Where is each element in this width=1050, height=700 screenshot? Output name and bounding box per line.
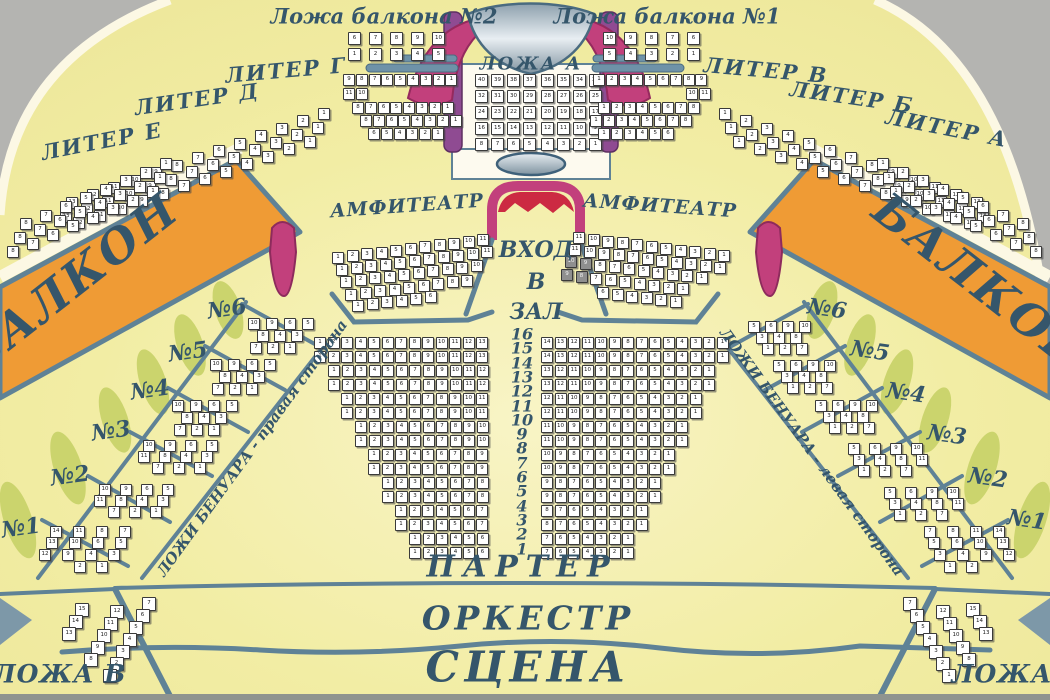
seat-lozha-a-left[interactable]: 37: [523, 74, 536, 87]
seat-parter-left[interactable]: 4: [396, 435, 408, 447]
seat-liter-d[interactable]: 3: [270, 137, 282, 149]
seat-parter-left[interactable]: 9: [436, 379, 448, 391]
seat-benuar-l4[interactable]: 9: [190, 400, 202, 412]
seat-liter-b[interactable]: 5: [809, 152, 821, 164]
seat-parter-right[interactable]: 10: [595, 351, 607, 363]
seat-liter-d[interactable]: 2: [297, 115, 309, 127]
seat-amfiteatr-left[interactable]: 2: [367, 298, 379, 310]
seat-liter-a[interactable]: 7: [1010, 238, 1022, 250]
seat-parter-left[interactable]: 8: [463, 449, 475, 461]
seat-parter-left[interactable]: 3: [355, 365, 367, 377]
seat-liter-v[interactable]: 4: [636, 102, 648, 114]
seat-parter-right[interactable]: 12: [541, 393, 553, 405]
seat-lozha-balkona-1[interactable]: 2: [666, 48, 679, 61]
seat-benuar-l6[interactable]: 8: [257, 330, 269, 342]
seat-liter-d[interactable]: 1: [304, 136, 316, 148]
seat-parter-right[interactable]: 12: [568, 351, 580, 363]
seat-parter-right[interactable]: 3: [609, 505, 621, 517]
seat-parter-left[interactable]: 7: [436, 435, 448, 447]
seat-amfiteatr-left[interactable]: 5: [403, 282, 415, 294]
seat-parter-right[interactable]: 6: [595, 463, 607, 475]
seat-amfiteatr-left[interactable]: 5: [394, 257, 406, 269]
seat-liter-b[interactable]: 5: [803, 138, 815, 150]
seat-parter-left[interactable]: 6: [382, 351, 394, 363]
seat-amfiteatr-right[interactable]: 2: [681, 270, 693, 282]
seat-liter-a[interactable]: 8: [1030, 246, 1042, 258]
seat-amfiteatr-left[interactable]: 2: [347, 250, 359, 262]
seat-parter-left[interactable]: 5: [382, 379, 394, 391]
seat-lozha-b[interactable]: 8: [962, 653, 976, 667]
seat-liter-v[interactable]: 3: [624, 102, 636, 114]
seat-parter-right[interactable]: 1: [663, 449, 675, 461]
seat-parter-right[interactable]: 1: [622, 547, 634, 559]
seat-lozha-v[interactable]: 13: [62, 627, 76, 641]
seat-liter-b[interactable]: 2: [754, 143, 766, 155]
seat-amfiteatr-left[interactable]: 11: [481, 246, 493, 258]
seat-lozha-a-right[interactable]: 27: [557, 90, 570, 103]
seat-liter-a[interactable]: 4: [937, 184, 949, 196]
seat-parter-right[interactable]: 2: [703, 337, 715, 349]
seat-parter-left[interactable]: 3: [382, 435, 394, 447]
seat-liter-g[interactable]: 3: [416, 102, 428, 114]
seat-liter-a[interactable]: 5: [970, 220, 982, 232]
seat-amfiteatr-left[interactable]: 7: [432, 278, 444, 290]
seat-liter-b[interactable]: 7: [845, 152, 857, 164]
seat-lozha-a-left[interactable]: 24: [475, 106, 488, 119]
seat-parter-right[interactable]: 4: [609, 491, 621, 503]
seat-parter-left[interactable]: 3: [422, 505, 434, 517]
seat-parter-left[interactable]: 6: [423, 435, 435, 447]
seat-parter-left[interactable]: 10: [463, 393, 475, 405]
seat-parter-right[interactable]: 8: [609, 365, 621, 377]
seat-parter-left[interactable]: 1: [409, 533, 421, 545]
seat-amfiteatr-right[interactable]: 4: [634, 278, 646, 290]
seat-parter-right[interactable]: 12: [541, 407, 553, 419]
seat-liter-b[interactable]: 1: [719, 108, 731, 120]
seat-liter-e[interactable]: 2: [127, 195, 139, 207]
seat-lozha-a-left[interactable]: 29: [523, 90, 536, 103]
seat-amfiteatr-right[interactable]: 2: [700, 260, 712, 272]
seat-liter-b[interactable]: 1: [725, 122, 737, 134]
seat-parter-right[interactable]: 8: [622, 351, 634, 363]
seat-benuar-l1[interactable]: 4: [85, 549, 97, 561]
seat-amfiteatr-right[interactable]: 6: [623, 263, 635, 275]
seat-parter-right[interactable]: 12: [568, 337, 580, 349]
seat-liter-a[interactable]: 3: [917, 175, 929, 187]
seat-liter-v[interactable]: 6: [662, 102, 674, 114]
seat-parter-left[interactable]: 10: [463, 407, 475, 419]
seat-benuar-l1[interactable]: 1: [96, 561, 108, 573]
seat-parter-left[interactable]: 11: [476, 407, 488, 419]
seat-lozha-a-left[interactable]: 22: [507, 106, 520, 119]
seat-amfiteatr-left[interactable]: 10: [467, 248, 479, 260]
seat-benuar-l6[interactable]: 10: [248, 318, 260, 330]
seat-parter-left[interactable]: 2: [369, 421, 381, 433]
seat-liter-a[interactable]: 4: [943, 198, 955, 210]
seat-liter-b[interactable]: 3: [775, 151, 787, 163]
seat-liter-e[interactable]: 1: [160, 158, 172, 170]
seat-parter-right[interactable]: 8: [595, 407, 607, 419]
seat-liter-g[interactable]: 5: [390, 102, 402, 114]
seat-liter-b[interactable]: 4: [796, 158, 808, 170]
seat-benuar-l2[interactable]: 7: [108, 506, 120, 518]
seat-parter-right[interactable]: 4: [595, 505, 607, 517]
seat-benuar-r1[interactable]: 4: [957, 549, 969, 561]
seat-lozha-a-left[interactable]: 39: [491, 74, 504, 87]
seat-parter-left[interactable]: 11: [449, 337, 461, 349]
seat-parter-right[interactable]: 2: [676, 407, 688, 419]
seat-parter-right[interactable]: 5: [568, 547, 580, 559]
seat-parter-left[interactable]: 5: [449, 505, 461, 517]
seat-liter-a[interactable]: 8: [1017, 218, 1029, 230]
seat-liter-g[interactable]: 6: [386, 115, 398, 127]
seat-parter-right[interactable]: 8: [609, 379, 621, 391]
seat-parter-left[interactable]: 2: [369, 435, 381, 447]
seat-liter-v[interactable]: 6: [657, 74, 669, 86]
seat-parter-left[interactable]: 3: [436, 533, 448, 545]
seat-parter-left[interactable]: 6: [409, 407, 421, 419]
seat-liter-b[interactable]: 2: [746, 129, 758, 141]
seat-liter-e[interactable]: 6: [47, 229, 59, 241]
seat-liter-d[interactable]: 2: [283, 143, 295, 155]
seat-liter-a[interactable]: 6: [990, 229, 1002, 241]
seat-parter-left[interactable]: 2: [423, 533, 435, 545]
seat-parter-right[interactable]: 9: [595, 379, 607, 391]
seat-parter-left[interactable]: 7: [449, 449, 461, 461]
seat-benuar-r4[interactable]: 7: [863, 422, 875, 434]
seat-lozha-a-left[interactable]: 31: [491, 90, 504, 103]
seat-parter-right[interactable]: 6: [622, 407, 634, 419]
seat-benuar-r6[interactable]: 1: [762, 343, 774, 355]
seat-lozha-balkona-2[interactable]: 10: [432, 32, 445, 45]
seat-liter-d[interactable]: 5: [234, 138, 246, 150]
seat-parter-left[interactable]: 9: [422, 337, 434, 349]
seat-benuar-l1[interactable]: 6: [92, 537, 104, 549]
seat-liter-g[interactable]: 10: [356, 88, 368, 100]
seat-benuar-l1[interactable]: 2: [74, 561, 86, 573]
seat-lozha-a-left[interactable]: 6: [507, 138, 520, 151]
seat-lozha-v[interactable]: 1: [103, 669, 117, 683]
seat-benuar-l1[interactable]: 3: [108, 549, 120, 561]
seat-benuar-r4[interactable]: 1: [829, 422, 841, 434]
seat-lozha-a-right[interactable]: 3: [557, 138, 570, 151]
seat-parter-left[interactable]: 7: [449, 463, 461, 475]
seat-liter-g[interactable]: 2: [437, 115, 449, 127]
seat-parter-right[interactable]: 5: [622, 421, 634, 433]
seat-liter-d[interactable]: 4: [241, 158, 253, 170]
seat-parter-left[interactable]: 7: [463, 491, 475, 503]
seat-benuar-r2[interactable]: 11: [952, 498, 964, 510]
seat-amfiteatr-right[interactable]: 11: [573, 232, 585, 244]
seat-parter-right[interactable]: 1: [703, 365, 715, 377]
seat-amfiteatr-right[interactable]: 11: [569, 244, 581, 256]
seat-liter-d[interactable]: 5: [220, 166, 232, 178]
seat-liter-d[interactable]: 5: [228, 152, 240, 164]
seat-parter-left[interactable]: 13: [476, 337, 488, 349]
seat-lozha-a-right[interactable]: 36: [541, 74, 554, 87]
seat-parter-right[interactable]: 3: [676, 365, 688, 377]
seat-liter-v[interactable]: 8: [683, 74, 695, 86]
seat-liter-b[interactable]: 7: [859, 180, 871, 192]
seat-amfiteatr-right[interactable]: 6: [642, 253, 654, 265]
seat-parter-right[interactable]: 11: [555, 407, 567, 419]
seat-lozha-balkona-2[interactable]: 5: [432, 48, 445, 61]
seat-amfiteatr-right[interactable]: 2: [655, 294, 667, 306]
seat-parter-right[interactable]: 7: [555, 519, 567, 531]
seat-parter-left[interactable]: 2: [342, 365, 354, 377]
seat-amfiteatr-left[interactable]: 8: [442, 263, 454, 275]
seat-parter-right[interactable]: 7: [609, 407, 621, 419]
seat-benuar-l1[interactable]: 10: [69, 537, 81, 549]
seat-liter-g[interactable]: 1: [445, 74, 457, 86]
seat-parter-left[interactable]: 1: [328, 379, 340, 391]
seat-benuar-l2[interactable]: 11: [94, 495, 106, 507]
seat-parter-right[interactable]: 1: [649, 477, 661, 489]
seat-benuar-l1[interactable]: 12: [39, 549, 51, 561]
seat-benuar-r3[interactable]: 7: [900, 465, 912, 477]
seat-parter-left[interactable]: 7: [395, 337, 407, 349]
seat-liter-b[interactable]: 2: [740, 115, 752, 127]
seat-parter-left[interactable]: 10: [450, 365, 462, 377]
seat-amfiteatr-right[interactable]: 9: [561, 269, 573, 281]
seat-liter-g[interactable]: 6: [381, 74, 393, 86]
seat-liter-e[interactable]: 3: [114, 189, 126, 201]
seat-parter-right[interactable]: 1: [717, 337, 729, 349]
seat-lozha-a-right[interactable]: 28: [541, 90, 554, 103]
seat-benuar-l3[interactable]: 11: [138, 451, 150, 463]
seat-liter-a[interactable]: 1: [890, 186, 902, 198]
seat-benuar-l6[interactable]: 5: [302, 318, 314, 330]
seat-parter-right[interactable]: 1: [649, 491, 661, 503]
seat-parter-right[interactable]: 5: [649, 365, 661, 377]
seat-lozha-a-left[interactable]: 5: [523, 138, 536, 151]
seat-liter-v[interactable]: 5: [644, 74, 656, 86]
seat-parter-right[interactable]: 8: [622, 337, 634, 349]
seat-amfiteatr-left[interactable]: 1: [340, 276, 352, 288]
seat-lozha-balkona-2[interactable]: 7: [369, 32, 382, 45]
seat-parter-right[interactable]: 1: [676, 421, 688, 433]
seat-parter-right[interactable]: 11: [555, 393, 567, 405]
seat-parter-right[interactable]: 11: [541, 421, 553, 433]
seat-parter-right[interactable]: 3: [609, 519, 621, 531]
seat-amfiteatr-left[interactable]: 9: [452, 250, 464, 262]
seat-lozha-a-left[interactable]: 14: [507, 122, 520, 135]
seat-benuar-r1[interactable]: 2: [966, 561, 978, 573]
seat-liter-a[interactable]: 2: [903, 181, 915, 193]
seat-parter-right[interactable]: 4: [676, 337, 688, 349]
seat-parter-left[interactable]: 8: [450, 435, 462, 447]
seat-parter-right[interactable]: 7: [595, 421, 607, 433]
seat-amfiteatr-right[interactable]: 5: [656, 255, 668, 267]
seat-parter-right[interactable]: 2: [663, 435, 675, 447]
seat-benuar-l1[interactable]: 13: [46, 537, 58, 549]
seat-parter-right[interactable]: 5: [649, 379, 661, 391]
seat-liter-e[interactable]: 8: [20, 218, 32, 230]
seat-benuar-l6[interactable]: 1: [284, 342, 296, 354]
seat-liter-g[interactable]: 9: [343, 74, 355, 86]
seat-liter-v[interactable]: 7: [670, 74, 682, 86]
seat-parter-right[interactable]: 10: [582, 365, 594, 377]
seat-parter-left[interactable]: 3: [341, 337, 353, 349]
seat-amfiteatr-left[interactable]: 8: [434, 239, 446, 251]
seat-parter-left[interactable]: 12: [463, 337, 475, 349]
seat-parter-right[interactable]: 1: [690, 393, 702, 405]
seat-parter-right[interactable]: 4: [582, 547, 594, 559]
seat-parter-left[interactable]: 9: [449, 407, 461, 419]
seat-amfiteatr-right[interactable]: 3: [685, 258, 697, 270]
seat-parter-left[interactable]: 6: [436, 449, 448, 461]
seat-lozha-a-left[interactable]: 38: [507, 74, 520, 87]
seat-parter-left[interactable]: 6: [450, 491, 462, 503]
seat-amfiteatr-left[interactable]: 7: [423, 253, 435, 265]
seat-amfiteatr-right[interactable]: 4: [675, 245, 687, 257]
seat-liter-e[interactable]: 8: [14, 232, 26, 244]
seat-parter-left[interactable]: 3: [409, 477, 421, 489]
seat-parter-left[interactable]: 1: [368, 449, 380, 461]
seat-liter-e[interactable]: 4: [100, 184, 112, 196]
seat-parter-right[interactable]: 1: [622, 533, 634, 545]
seat-parter-right[interactable]: 9: [595, 365, 607, 377]
seat-parter-left[interactable]: 12: [477, 365, 489, 377]
seat-parter-left[interactable]: 2: [409, 519, 421, 531]
seat-parter-right[interactable]: 4: [676, 351, 688, 363]
seat-amfiteatr-left[interactable]: 4: [380, 259, 392, 271]
seat-parter-right[interactable]: 13: [541, 379, 553, 391]
seat-parter-left[interactable]: 4: [396, 421, 408, 433]
seat-benuar-l4[interactable]: 7: [174, 424, 186, 436]
seat-liter-b[interactable]: 7: [851, 166, 863, 178]
seat-liter-e[interactable]: 7: [40, 210, 52, 222]
seat-parter-left[interactable]: 1: [341, 407, 353, 419]
seat-liter-a[interactable]: 6: [977, 201, 989, 213]
seat-parter-left[interactable]: 4: [436, 519, 448, 531]
seat-liter-a[interactable]: 5: [957, 192, 969, 204]
seat-lozha-balkona-1[interactable]: 10: [603, 32, 616, 45]
seat-parter-right[interactable]: 5: [609, 449, 621, 461]
seat-liter-e[interactable]: 7: [34, 224, 46, 236]
seat-liter-e[interactable]: 5: [80, 192, 92, 204]
seat-liter-e[interactable]: 4: [94, 198, 106, 210]
seat-benuar-r2[interactable]: 1: [894, 509, 906, 521]
seat-parter-right[interactable]: 8: [568, 449, 580, 461]
seat-liter-d[interactable]: 7: [186, 166, 198, 178]
seat-amfiteatr-right[interactable]: 7: [627, 251, 639, 263]
seat-parter-right[interactable]: 3: [649, 421, 661, 433]
seat-liter-e[interactable]: 6: [54, 215, 66, 227]
seat-amfiteatr-right[interactable]: 2: [663, 282, 675, 294]
seat-parter-right[interactable]: 7: [541, 533, 553, 545]
seat-liter-d[interactable]: 2: [291, 129, 303, 141]
seat-parter-left[interactable]: 8: [423, 379, 435, 391]
seat-parter-right[interactable]: 9: [555, 449, 567, 461]
seat-parter-left[interactable]: 2: [328, 351, 340, 363]
seat-parter-right[interactable]: 1: [690, 407, 702, 419]
seat-lozha-a-right[interactable]: 34: [573, 74, 586, 87]
seat-lozha-balkona-2[interactable]: 8: [390, 32, 403, 45]
seat-liter-e[interactable]: 7: [27, 238, 39, 250]
seat-parter-right[interactable]: 10: [582, 379, 594, 391]
seat-parter-right[interactable]: 9: [555, 463, 567, 475]
seat-amfiteatr-right[interactable]: 7: [631, 239, 643, 251]
seat-parter-right[interactable]: 3: [663, 407, 675, 419]
seat-amfiteatr-left[interactable]: 7: [427, 265, 439, 277]
seat-liter-a[interactable]: 3: [930, 203, 942, 215]
seat-amfiteatr-right[interactable]: 8: [594, 260, 606, 272]
seat-parter-right[interactable]: 6: [649, 337, 661, 349]
seat-parter-left[interactable]: 5: [395, 407, 407, 419]
seat-liter-g[interactable]: 8: [360, 115, 372, 127]
seat-amfiteatr-right[interactable]: 1: [670, 296, 682, 308]
seat-lozha-a-left[interactable]: 40: [475, 74, 488, 87]
seat-liter-a[interactable]: 1: [883, 172, 895, 184]
seat-parter-right[interactable]: 7: [595, 435, 607, 447]
seat-parter-left[interactable]: 11: [476, 393, 488, 405]
seat-parter-left[interactable]: 3: [395, 449, 407, 461]
seat-parter-right[interactable]: 9: [568, 435, 580, 447]
seat-parter-right[interactable]: 4: [636, 421, 648, 433]
seat-parter-left[interactable]: 8: [436, 393, 448, 405]
seat-parter-left[interactable]: 6: [450, 477, 462, 489]
seat-amfiteatr-right[interactable]: 8: [617, 237, 629, 249]
seat-parter-left[interactable]: 4: [409, 463, 421, 475]
seat-amfiteatr-right[interactable]: 9: [602, 236, 614, 248]
seat-liter-v[interactable]: 6: [654, 115, 666, 127]
seat-liter-g[interactable]: 1: [442, 102, 454, 114]
seat-amfiteatr-left[interactable]: 1: [336, 264, 348, 276]
seat-parter-left[interactable]: 11: [463, 379, 475, 391]
seat-parter-left[interactable]: 7: [436, 421, 448, 433]
seat-liter-a[interactable]: 6: [983, 215, 995, 227]
seat-lozha-a-left[interactable]: 32: [475, 90, 488, 103]
seat-parter-right[interactable]: 6: [555, 533, 567, 545]
seat-parter-right[interactable]: 7: [555, 505, 567, 517]
seat-liter-g[interactable]: 8: [356, 74, 368, 86]
seat-liter-d[interactable]: 7: [178, 180, 190, 192]
seat-amfiteatr-right[interactable]: 3: [641, 292, 653, 304]
seat-parter-right[interactable]: 7: [541, 547, 553, 559]
seat-parter-right[interactable]: 14: [541, 351, 553, 363]
seat-parter-right[interactable]: 5: [663, 337, 675, 349]
seat-parter-left[interactable]: 8: [409, 337, 421, 349]
seat-liter-e[interactable]: 5: [74, 206, 86, 218]
seat-parter-right[interactable]: 4: [582, 533, 594, 545]
seat-lozha-a-left[interactable]: 15: [491, 122, 504, 135]
seat-liter-g[interactable]: 5: [394, 74, 406, 86]
seat-parter-left[interactable]: 10: [436, 337, 448, 349]
seat-amfiteatr-right[interactable]: 4: [626, 291, 638, 303]
seat-benuar-l1[interactable]: 5: [115, 537, 127, 549]
seat-benuar-r1[interactable]: 10: [974, 537, 986, 549]
seat-lozha-a-left[interactable]: 13: [523, 122, 536, 135]
seat-parter-right[interactable]: 6: [582, 491, 594, 503]
seat-liter-v[interactable]: 1: [598, 102, 610, 114]
seat-parter-right[interactable]: 4: [595, 519, 607, 531]
seat-parter-right[interactable]: 7: [568, 477, 580, 489]
seat-amfiteatr-right[interactable]: 2: [704, 248, 716, 260]
seat-parter-left[interactable]: 4: [382, 393, 394, 405]
seat-parter-right[interactable]: 13: [555, 351, 567, 363]
seat-parter-right[interactable]: 2: [676, 393, 688, 405]
seat-amfiteatr-right[interactable]: 4: [652, 267, 664, 279]
seat-parter-right[interactable]: 3: [595, 547, 607, 559]
seat-benuar-l6[interactable]: 2: [267, 342, 279, 354]
seat-lozha-balkona-1[interactable]: 1: [687, 48, 700, 61]
seat-parter-left[interactable]: 9: [436, 365, 448, 377]
seat-amfiteatr-left[interactable]: 3: [381, 296, 393, 308]
seat-benuar-l5[interactable]: 4: [236, 371, 248, 383]
seat-liter-b[interactable]: 3: [761, 123, 773, 135]
seat-benuar-l3[interactable]: 2: [173, 462, 185, 474]
